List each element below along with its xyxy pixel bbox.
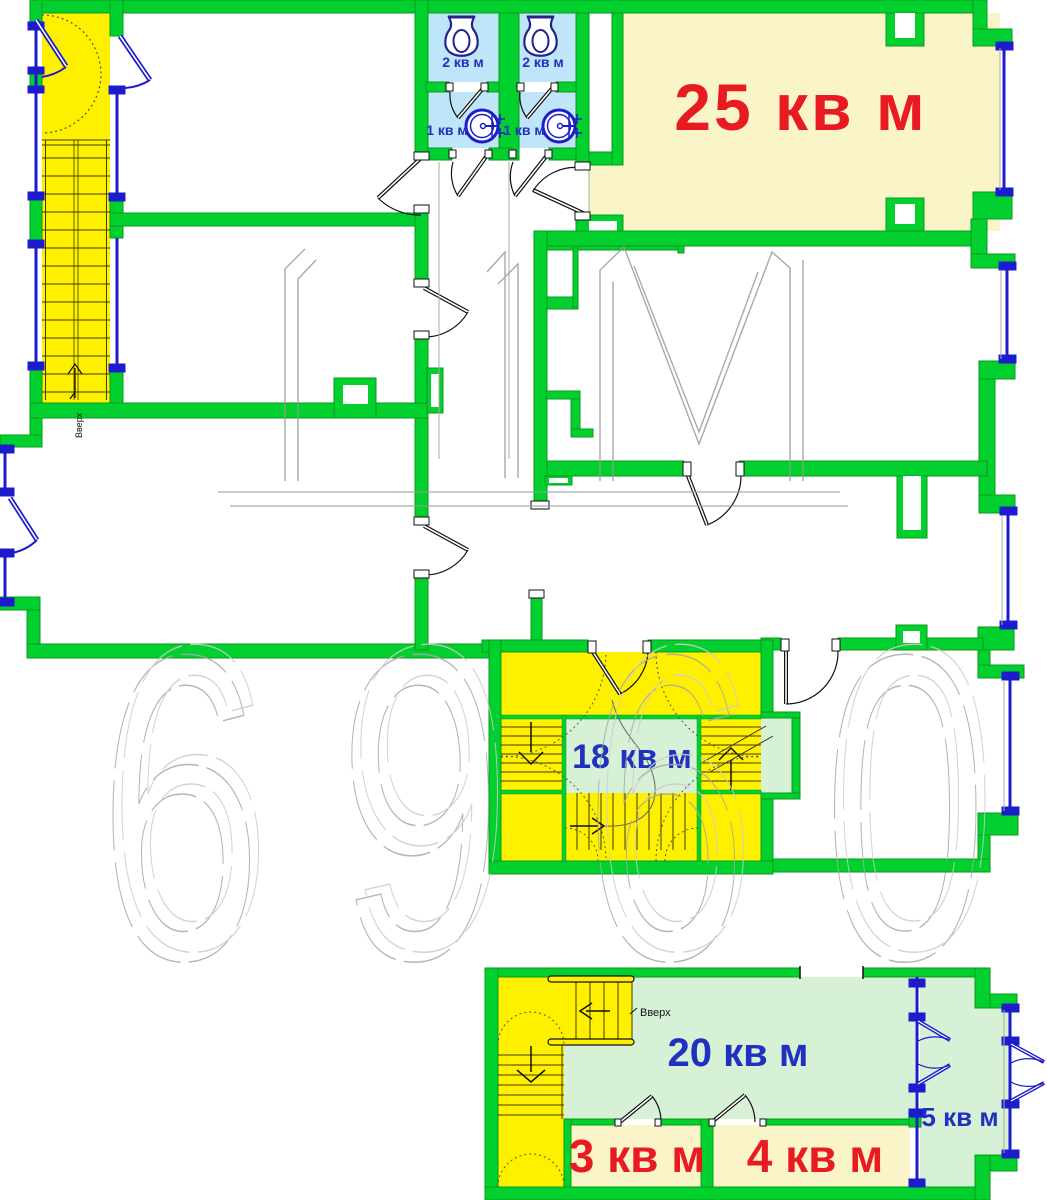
svg-text:2 кв м: 2 кв м	[442, 54, 484, 70]
svg-text:4 кв м: 4 кв м	[747, 1130, 883, 1182]
svg-text:6: 6	[107, 554, 272, 1040]
svg-text:6: 6	[592, 554, 757, 1040]
svg-text:Вверх: Вверх	[74, 412, 84, 438]
svg-text:3 кв м: 3 кв м	[569, 1130, 705, 1182]
svg-text:25 кв м: 25 кв м	[674, 70, 928, 144]
svg-text:1 кв м: 1 кв м	[503, 122, 545, 138]
svg-text:2 кв м: 2 кв м	[522, 54, 564, 70]
svg-text:9: 9	[347, 554, 512, 1040]
svg-text:5 кв м: 5 кв м	[921, 1102, 998, 1132]
svg-text:1 кв м: 1 кв м	[426, 122, 468, 138]
svg-text:0: 0	[832, 554, 997, 1040]
